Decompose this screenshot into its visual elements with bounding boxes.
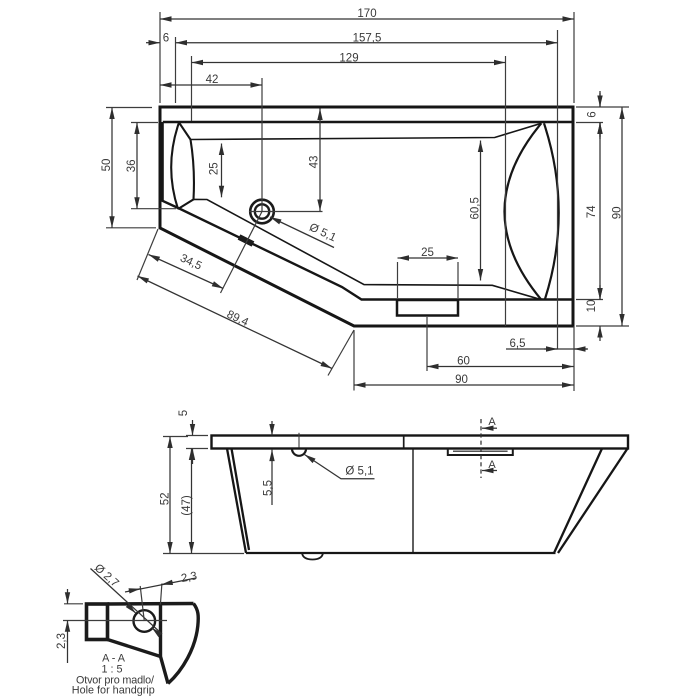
- svg-text:Ø 2,7: Ø 2,7: [92, 562, 121, 590]
- svg-text:6: 6: [586, 111, 598, 117]
- svg-text:25: 25: [421, 247, 434, 259]
- svg-text:36: 36: [126, 160, 138, 173]
- svg-text:90: 90: [455, 374, 468, 386]
- svg-text:42: 42: [206, 74, 219, 86]
- svg-text:A: A: [488, 459, 496, 471]
- svg-text:170: 170: [357, 8, 376, 20]
- svg-text:60,5: 60,5: [470, 197, 482, 219]
- svg-text:2,3: 2,3: [56, 633, 68, 649]
- svg-text:90: 90: [611, 206, 623, 219]
- svg-text:52: 52: [160, 493, 172, 506]
- svg-text:Ø 5,1: Ø 5,1: [307, 222, 338, 245]
- svg-text:129: 129: [339, 52, 358, 64]
- svg-text:6,5: 6,5: [510, 338, 526, 350]
- svg-text:Hole for handgrip: Hole for handgrip: [72, 684, 155, 696]
- svg-text:Ø 5,1: Ø 5,1: [345, 466, 373, 478]
- svg-text:2,3: 2,3: [180, 570, 198, 585]
- svg-text:(47): (47): [181, 495, 193, 516]
- svg-text:43: 43: [309, 156, 321, 169]
- svg-text:5,5: 5,5: [263, 480, 275, 496]
- svg-text:A: A: [488, 416, 496, 428]
- svg-text:10: 10: [586, 300, 598, 313]
- svg-text:50: 50: [101, 159, 113, 172]
- svg-text:6: 6: [163, 32, 169, 44]
- svg-text:5: 5: [178, 410, 190, 416]
- svg-text:60: 60: [457, 355, 470, 367]
- svg-text:89,4: 89,4: [225, 309, 251, 330]
- svg-text:157,5: 157,5: [353, 32, 382, 44]
- svg-text:74: 74: [586, 205, 598, 218]
- svg-text:25: 25: [209, 162, 221, 175]
